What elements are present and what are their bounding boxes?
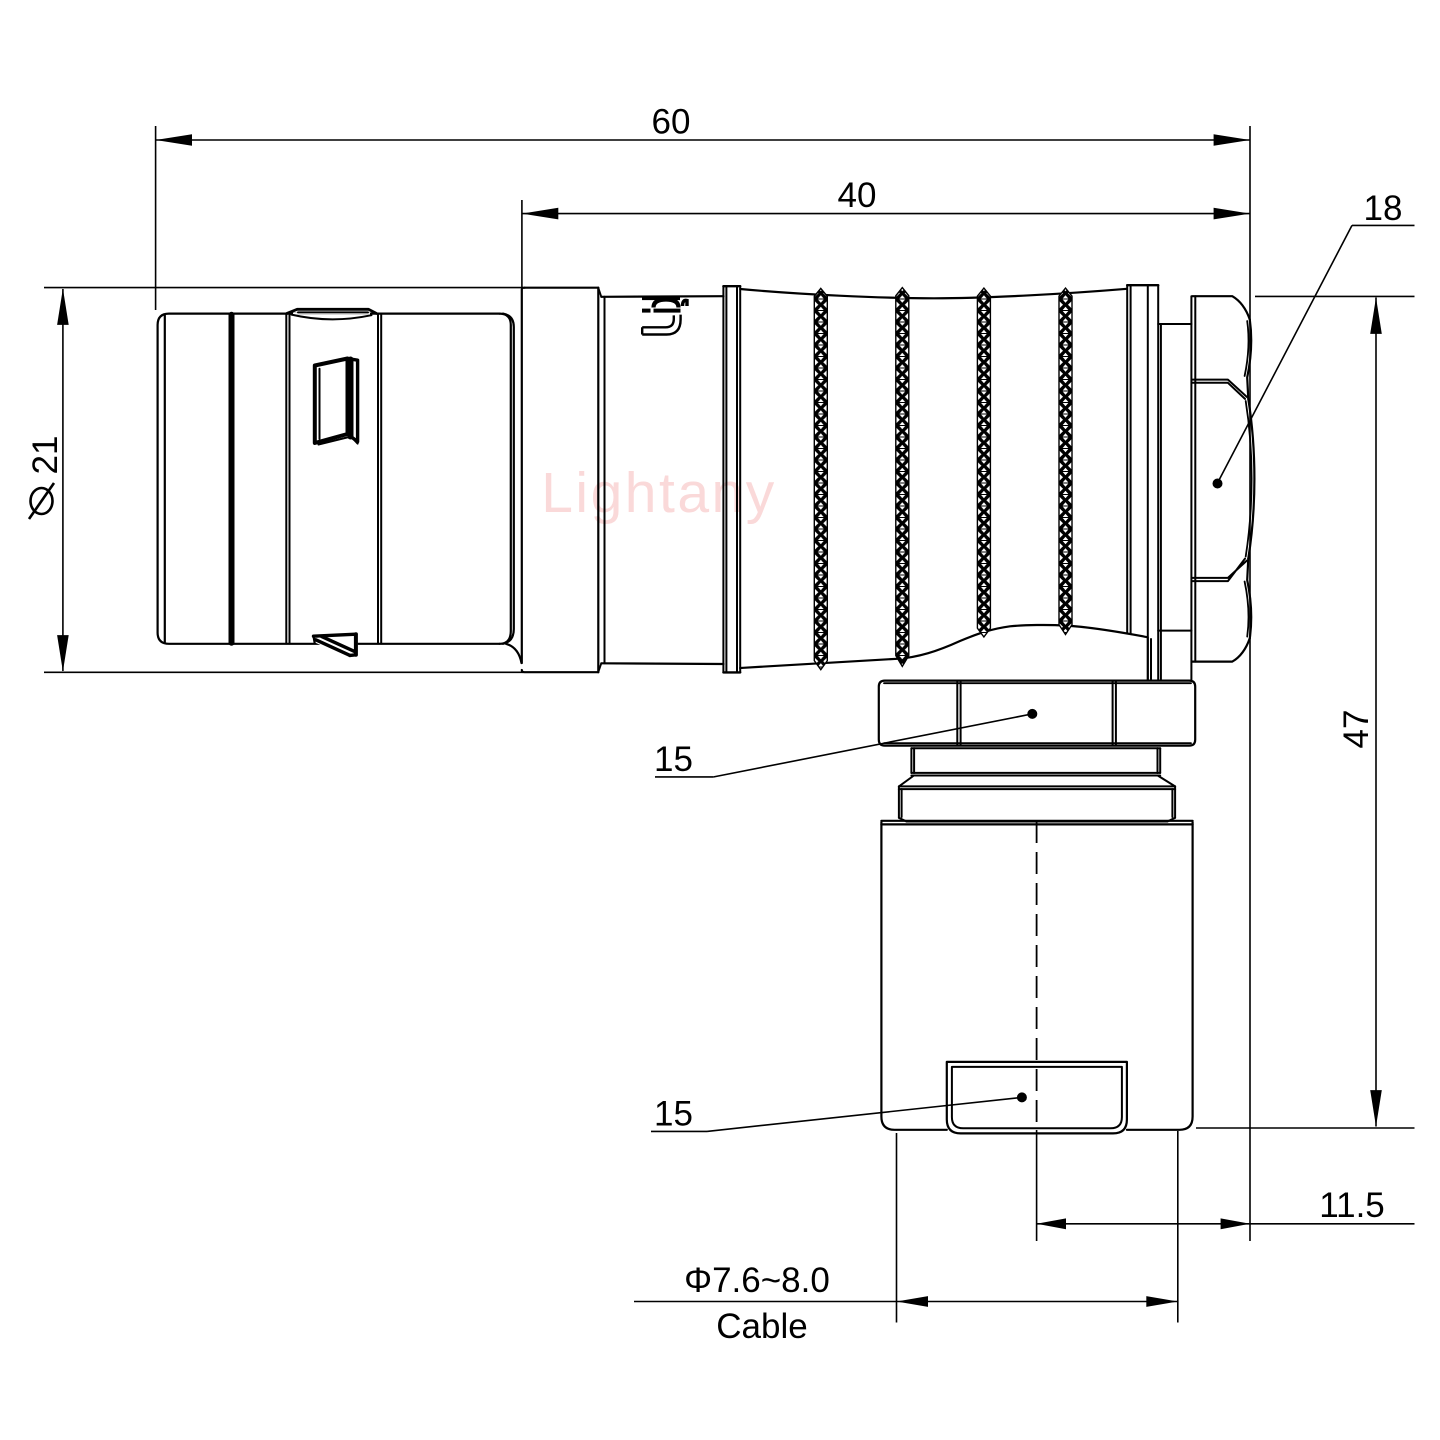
svg-text:15: 15	[654, 1095, 693, 1134]
svg-text:11.5: 11.5	[1319, 1186, 1385, 1225]
svg-text:15: 15	[654, 740, 693, 779]
svg-text:47: 47	[1337, 710, 1376, 749]
svg-text:18: 18	[1364, 189, 1403, 228]
svg-text:Lightany: Lightany	[541, 461, 777, 525]
svg-text:Cable: Cable	[716, 1307, 807, 1346]
svg-text:60: 60	[652, 103, 691, 142]
svg-text:40: 40	[838, 176, 877, 215]
svg-text:Φ7.6~8.0: Φ7.6~8.0	[684, 1261, 830, 1300]
svg-text:21: 21	[26, 436, 65, 475]
